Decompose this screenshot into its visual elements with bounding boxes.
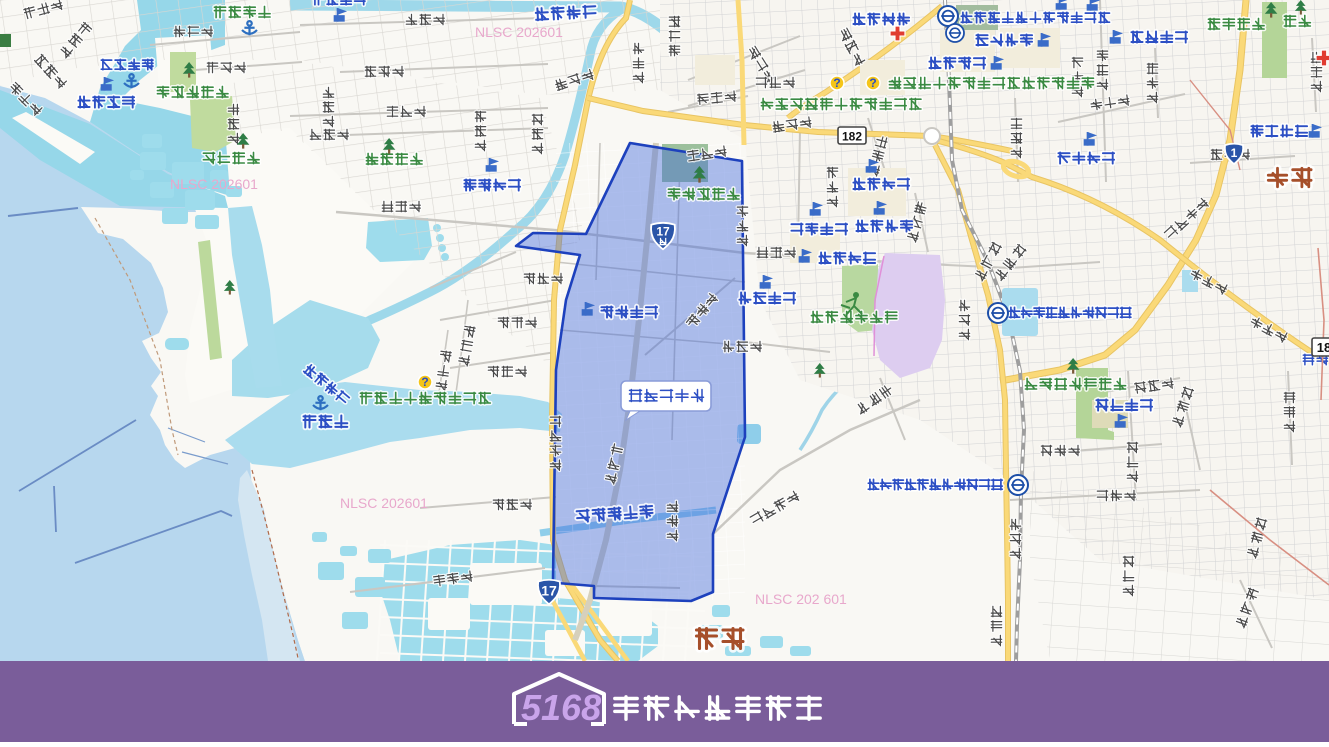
svg-text:17: 17	[541, 583, 557, 599]
svg-text:NLSC 202 601: NLSC 202 601	[755, 591, 847, 607]
svg-text:?: ?	[833, 76, 840, 90]
svg-text:18: 18	[1317, 340, 1329, 355]
svg-text:NLSC 202601: NLSC 202601	[340, 495, 428, 511]
svg-text:?: ?	[869, 76, 876, 90]
svg-text:1: 1	[1231, 146, 1238, 160]
svg-text:182: 182	[842, 129, 862, 143]
svg-text:NLSC 202601: NLSC 202601	[170, 176, 258, 192]
svg-text:5168: 5168	[521, 687, 601, 728]
svg-text:NLSC 202601: NLSC 202601	[475, 24, 563, 40]
svg-text:17: 17	[656, 225, 670, 239]
svg-text:?: ?	[421, 375, 428, 389]
